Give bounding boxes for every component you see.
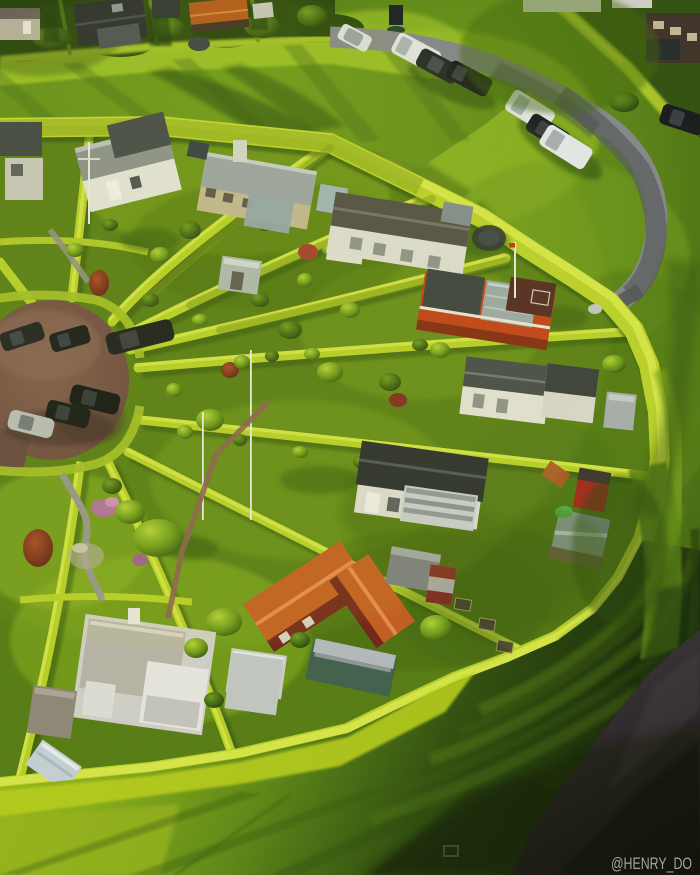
svg-text:@HENRY_DO: @HENRY_DO [611,854,692,873]
